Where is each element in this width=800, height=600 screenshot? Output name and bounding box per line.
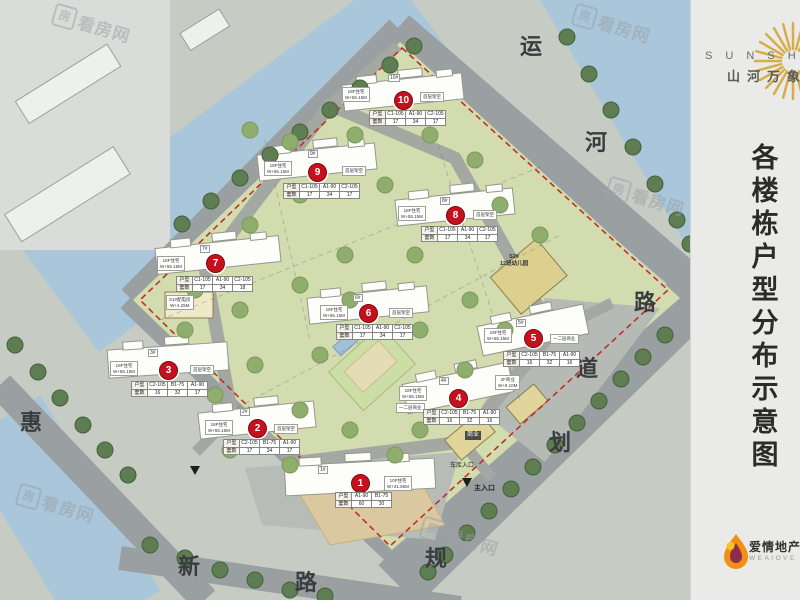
unit-type: A1-90 xyxy=(188,382,208,390)
unit-type: A1-90 xyxy=(480,410,500,418)
unit-type-header: 户型 xyxy=(177,277,193,285)
commercial-label: 商业 xyxy=(465,431,481,440)
unit-count-header: 套数 xyxy=(177,284,193,292)
unit-type-header: 户型 xyxy=(224,440,240,448)
unit-type-header: 户型 xyxy=(132,382,148,390)
unit-count: 34 xyxy=(260,447,280,455)
building-6-side-label: 18F住宅 W+55.15M xyxy=(320,305,348,320)
building-10-floors: 18F住宅 xyxy=(345,89,367,95)
title-char: 各 xyxy=(745,142,785,175)
building-1-height: W+31.55M xyxy=(387,484,409,490)
building-10-unit-table: 户型 C1-105 A1-90 C2-105 套数 17 34 17 xyxy=(369,110,446,126)
road-label-char: 新 xyxy=(178,556,200,578)
unit-count-header: 套数 xyxy=(337,332,353,340)
watermark-logo-icon: 房 xyxy=(418,515,446,543)
unit-type: B1-75 xyxy=(540,352,560,360)
building-10-marker: 10 xyxy=(394,91,413,110)
side-panel: S U N S H I 山河万象 各 楼 栋 户 型 分 布 示 意 图 爱情地… xyxy=(690,0,800,600)
building-10-note: 首层架空 xyxy=(420,92,444,102)
garage-entrance-label: 车库入口 xyxy=(450,460,474,469)
developer-flame-logo-icon xyxy=(721,532,751,570)
power-room-label: S1#配电房 W+4.25M xyxy=(166,295,194,310)
title-char: 意 xyxy=(745,406,785,439)
unit-type: B1-75 xyxy=(168,382,188,390)
unit-type: C2-105 xyxy=(393,325,413,333)
unit-type-header: 户型 xyxy=(370,111,386,119)
building-7-tag: 7# xyxy=(200,245,210,253)
unit-count: 17 xyxy=(426,118,446,126)
building-5-height: W+55.15M xyxy=(487,336,509,342)
entrance-marker-icon xyxy=(190,466,200,475)
building-10-height: W+55.15M xyxy=(345,95,367,101)
unit-type: B1-75 xyxy=(372,493,392,501)
building-7-height: W+55.15M xyxy=(160,264,182,270)
unit-count: 32 xyxy=(540,359,560,367)
building-2-height: W+55.15M xyxy=(208,428,230,434)
road-label-char: 惠 xyxy=(20,412,42,434)
building-4-note: 一二层商业 xyxy=(396,403,425,413)
unit-count: 16 xyxy=(148,389,168,397)
unit-type: B1-75 xyxy=(260,440,280,448)
building-8-height: W+55.15M xyxy=(401,214,423,220)
building-4-unit-table: 户型 C2-105 B1-75 A1-90 套数 16 32 16 xyxy=(423,409,500,425)
unit-type: A1-90 xyxy=(280,440,300,448)
unit-count: 17 xyxy=(393,332,413,340)
unit-type: C1-105 xyxy=(353,325,373,333)
unit-count-header: 套数 xyxy=(424,417,440,425)
unit-count-header: 套数 xyxy=(132,389,148,397)
unit-type: C2-105 xyxy=(240,440,260,448)
unit-count: 32 xyxy=(168,389,188,397)
title-char: 型 xyxy=(745,274,785,307)
unit-type: C1-105 xyxy=(300,184,320,192)
unit-type-header: 户型 xyxy=(284,184,300,192)
unit-count-header: 套数 xyxy=(284,191,300,199)
unit-count: 34 xyxy=(406,118,426,126)
building-5-tag: 5# xyxy=(516,319,526,327)
building-2-note: 首层架空 xyxy=(274,424,298,434)
building-1-tag: 1# xyxy=(318,466,328,474)
kindergarten-label: S2# 12班幼儿园 xyxy=(500,254,528,268)
building-3-note: 首层架空 xyxy=(190,365,214,375)
power-room-height: W+4.25M xyxy=(169,303,191,309)
unit-type: C1-105 xyxy=(193,277,213,285)
unit-type-header: 户型 xyxy=(424,410,440,418)
unit-count: 16 xyxy=(480,417,500,425)
unit-count: 16 xyxy=(440,417,460,425)
building-7-side-label: 18F住宅 W+55.15M xyxy=(157,256,185,271)
road-label-char: 路 xyxy=(634,292,656,314)
page-title: 各 楼 栋 户 型 分 布 示 意 图 xyxy=(745,142,785,472)
unit-count: 17 xyxy=(193,284,213,292)
unit-type: C2-105 xyxy=(478,227,498,235)
building-3-height: W+55.15M xyxy=(113,369,135,375)
canal-label-char: 运 xyxy=(520,36,542,58)
title-char: 栋 xyxy=(745,208,785,241)
title-char: 示 xyxy=(745,373,785,406)
unit-type: C1-105 xyxy=(386,111,406,119)
road-label-char: 划 xyxy=(549,432,571,454)
unit-count: 34 xyxy=(373,332,393,340)
unit-count-header: 套数 xyxy=(336,500,352,508)
watermark-logo-icon: 房 xyxy=(14,482,42,510)
building-1-marker: 1 xyxy=(351,474,370,493)
building-5-note: 一二层商业 xyxy=(550,334,579,344)
building-8-tag: 8# xyxy=(440,197,450,205)
unit-type: A1-90 xyxy=(320,184,340,192)
unit-type: B1-75 xyxy=(460,410,480,418)
brand-name-cn: 山河万象 xyxy=(727,66,800,85)
unit-type-header: 户型 xyxy=(504,352,520,360)
building-10-side-label: 18F住宅 W+55.15M xyxy=(342,87,370,102)
unit-type: A1-90 xyxy=(560,352,580,360)
unit-count: 17 xyxy=(240,447,260,455)
unit-type: A1-90 xyxy=(406,111,426,119)
unit-count: 17 xyxy=(386,118,406,126)
unit-type: C2-105 xyxy=(148,382,168,390)
building-5-side-label: 18F住宅 W+55.15M xyxy=(484,328,512,343)
building-9-marker: 9 xyxy=(308,163,327,182)
kindergarten-id: S2# xyxy=(500,254,528,261)
building-9-note: 首层架空 xyxy=(342,166,366,176)
building-2-side-label: 18F住宅 W+55.15M xyxy=(205,420,233,435)
building-2-tag: 2# xyxy=(240,408,250,416)
building-1-floors: 10F住宅 xyxy=(387,478,409,484)
unit-type: C2-105 xyxy=(340,184,360,192)
unit-type: C2-105 xyxy=(440,410,460,418)
unit-type: A1-90 xyxy=(352,493,372,501)
unit-count: 17 xyxy=(188,389,208,397)
road-label-char: 路 xyxy=(295,572,317,594)
building-3-floors: 18F住宅 xyxy=(113,363,135,369)
building-6-height: W+55.15M xyxy=(323,313,345,319)
building-3-side-label: 18F住宅 W+55.15M xyxy=(110,361,138,376)
unit-count: 34 xyxy=(320,191,340,199)
unit-count: 32 xyxy=(460,417,480,425)
building-8-side-label: 18F住宅 W+55.15M xyxy=(398,206,426,221)
building-9-floors: 18F住宅 xyxy=(267,163,289,169)
unit-type: C2-105 xyxy=(426,111,446,119)
building-9-side-label: 18F住宅 W+55.15M xyxy=(264,161,292,176)
building-6-note: 首层架空 xyxy=(389,308,413,318)
unit-count: 18 xyxy=(233,284,253,292)
building-3-unit-table: 户型 C2-105 B1-75 A1-90 套数 16 32 17 xyxy=(131,381,208,397)
title-char: 布 xyxy=(745,340,785,373)
building-5-unit-table: 户型 C2-105 B1-75 A1-90 套数 16 32 16 xyxy=(503,351,580,367)
building-6-floors: 18F住宅 xyxy=(323,307,345,313)
title-char: 户 xyxy=(745,241,785,274)
developer-name-cn: 爱情地产 xyxy=(749,538,800,555)
unit-type: C2-105 xyxy=(520,352,540,360)
title-char: 图 xyxy=(745,439,785,472)
building-8-marker: 8 xyxy=(446,206,465,225)
canal-label-char: 河 xyxy=(585,132,607,154)
building-8-unit-table: 户型 C1-105 A1-90 C2-105 套数 17 34 17 xyxy=(421,226,498,242)
commercial-2f-name: 2F商业 xyxy=(498,377,517,383)
building-7-unit-table: 户型 C1-105 A1-90 C2-105 套数 17 34 18 xyxy=(176,276,253,292)
unit-count: 17 xyxy=(280,447,300,455)
building-8-note: 首层架空 xyxy=(473,210,497,220)
main-entrance-label: 主入口 xyxy=(474,483,495,493)
entrance-marker-icon xyxy=(462,478,472,487)
commercial-2f-label: 2F商业 W+8.10M xyxy=(495,375,520,390)
unit-type: A1-90 xyxy=(373,325,393,333)
building-2-unit-table: 户型 C2-105 B1-75 A1-90 套数 17 34 17 xyxy=(223,439,300,455)
kindergarten-name: 12班幼儿园 xyxy=(500,261,528,268)
unit-count-header: 套数 xyxy=(422,234,438,242)
building-2-marker: 2 xyxy=(248,419,267,438)
building-2-floors: 18F住宅 xyxy=(208,422,230,428)
building-9-unit-table: 户型 C1-105 A1-90 C2-105 套数 17 34 17 xyxy=(283,183,360,199)
unit-type: C2-105 xyxy=(233,277,253,285)
watermark-logo-icon: 房 xyxy=(604,175,632,203)
building-7-marker: 7 xyxy=(206,254,225,273)
developer-name-en: WEAIOVE xyxy=(749,555,797,562)
unit-count-header: 套数 xyxy=(224,447,240,455)
unit-count: 34 xyxy=(213,284,233,292)
unit-count: 16 xyxy=(560,359,580,367)
building-5-marker: 5 xyxy=(524,329,543,348)
building-9-tag: 9# xyxy=(308,150,318,158)
building-6-tag: 6# xyxy=(353,294,363,302)
building-8-floors: 18F住宅 xyxy=(401,208,423,214)
unit-type-header: 户型 xyxy=(336,493,352,501)
building-10-tag: 10# xyxy=(388,74,400,82)
unit-count: 17 xyxy=(300,191,320,199)
unit-type-header: 户型 xyxy=(422,227,438,235)
unit-count: 17 xyxy=(478,234,498,242)
unit-type: A1-90 xyxy=(458,227,478,235)
unit-count: 16 xyxy=(520,359,540,367)
brand-name-en: S U N S H I xyxy=(705,50,800,62)
building-7-floors: 18F住宅 xyxy=(160,258,182,264)
unit-count-header: 套数 xyxy=(370,118,386,126)
unit-count: 17 xyxy=(340,191,360,199)
power-room-id: S1#配电房 xyxy=(169,297,191,303)
unit-count: 34 xyxy=(458,234,478,242)
building-3-tag: 3# xyxy=(148,349,158,357)
commercial-2f-height: W+8.10M xyxy=(498,383,517,389)
watermark-logo-icon: 房 xyxy=(570,2,598,30)
building-4-marker: 4 xyxy=(449,389,468,408)
unit-type: C1-105 xyxy=(438,227,458,235)
building-4-tag: 4# xyxy=(439,377,449,385)
unit-count: 60 xyxy=(352,500,372,508)
building-9-height: W+55.15M xyxy=(267,169,289,175)
road-label-char: 规 xyxy=(425,548,447,570)
building-4-height: W+55.15M xyxy=(402,394,424,400)
title-char: 分 xyxy=(745,307,785,340)
building-1-side-label: 10F住宅 W+31.55M xyxy=(384,476,412,491)
unit-type: A1-90 xyxy=(213,277,233,285)
title-char: 楼 xyxy=(745,175,785,208)
unit-count: 17 xyxy=(438,234,458,242)
watermark-logo-icon: 房 xyxy=(50,2,78,30)
unit-type-header: 户型 xyxy=(337,325,353,333)
building-3-marker: 3 xyxy=(159,361,178,380)
building-4-floors: 18F住宅 xyxy=(402,388,424,394)
building-1-unit-table: 户型 A1-90 B1-75 套数 60 30 xyxy=(335,492,392,508)
building-4-side-label: 18F住宅 W+55.15M xyxy=(399,386,427,401)
building-6-marker: 6 xyxy=(359,304,378,323)
unit-count-header: 套数 xyxy=(504,359,520,367)
site-plan-screenshot: 运 河 路 道 划 规 惠 新 路 1# 1 10F住宅 W+31.55M 户型… xyxy=(0,0,800,600)
unit-count: 30 xyxy=(372,500,392,508)
building-5-floors: 18F住宅 xyxy=(487,330,509,336)
building-6-unit-table: 户型 C1-105 A1-90 C2-105 套数 17 34 17 xyxy=(336,324,413,340)
unit-count: 17 xyxy=(353,332,373,340)
